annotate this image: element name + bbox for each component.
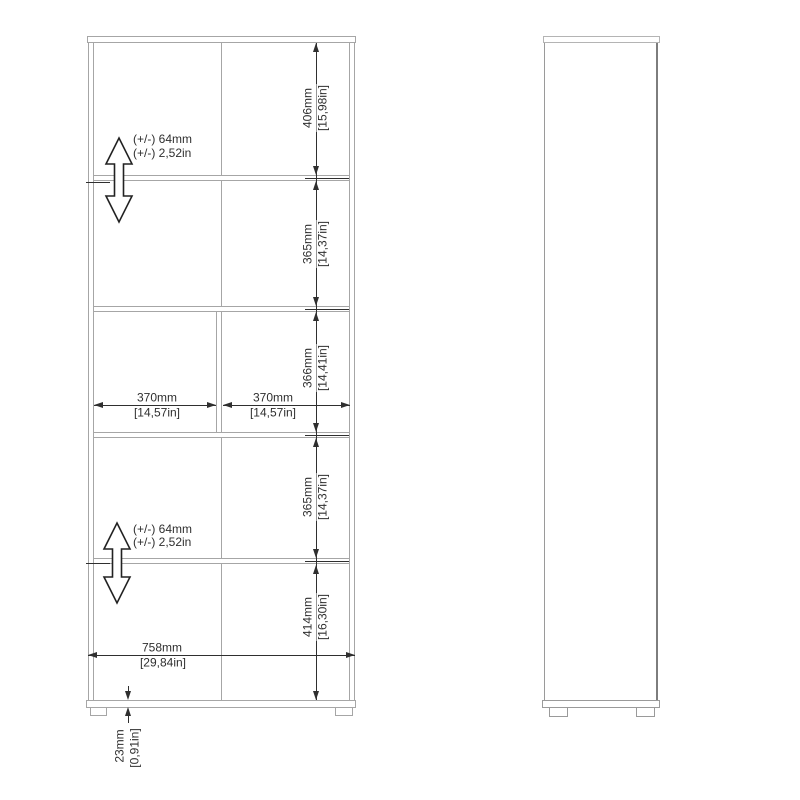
dim-arrow-top: [313, 43, 319, 52]
technical-drawing-canvas: 406mm [15,98in] 365mm [14,37in] 366mm [1…: [0, 0, 800, 800]
ext-line-shelf-1: [305, 178, 349, 179]
dim-label-370mm-right: 370mm: [252, 392, 294, 405]
dim-label-414mm-in: [16,30in]: [317, 593, 330, 641]
side-top-panel: [543, 36, 660, 43]
dim-line-plinth-lower: [128, 716, 129, 723]
dim-arrow-shelf4-below: [313, 565, 319, 574]
dim-label-366mm: 366mm: [302, 347, 315, 389]
dim-label-370mm-right-in: [14,57in]: [249, 407, 297, 420]
front-top-panel: [87, 36, 356, 43]
dim-label-758mm: 758mm: [141, 642, 183, 655]
front-left-side-panel: [88, 42, 94, 701]
dim-label-366mm-in: [14,41in]: [317, 344, 330, 392]
dim-arrow-bottom: [313, 691, 319, 700]
front-center-divider-edge: [216, 312, 217, 432]
dim-arrow-shelf3-below: [313, 438, 319, 447]
front-foot-right: [335, 707, 353, 716]
adjustable-shelf-arrow-icon: [101, 521, 133, 607]
adjustable-note-1-mm: (+/-) 64mm: [133, 133, 192, 146]
dim-label-414mm: 414mm: [302, 596, 315, 638]
adjustable-note-2-in: (+/-) 2,52in: [133, 536, 191, 549]
dim-arrow-shelf3-above: [313, 423, 319, 432]
dim-label-406mm: 406mm: [302, 87, 315, 129]
dim-arrow-overall-width-l: [88, 652, 97, 658]
side-body: [544, 43, 658, 700]
dim-arrow-overall-width-r: [346, 652, 355, 658]
ext-line-shelf-4: [305, 561, 349, 562]
dim-arrow-shelf1-above: [313, 166, 319, 175]
ext-line-shelf-3: [305, 435, 349, 436]
dim-arrow-left-compartment-l: [94, 402, 103, 408]
front-foot-left: [90, 707, 107, 716]
front-center-divider: [221, 43, 222, 700]
dim-arrow-right-compartment-l: [223, 402, 232, 408]
dim-arrow-right-compartment-r: [341, 402, 350, 408]
dim-label-23mm-in: [0,91in]: [129, 727, 142, 768]
dim-label-365mm-lower: 365mm: [302, 476, 315, 518]
front-right-side-panel: [349, 42, 355, 701]
dim-label-406mm-in: [15,98in]: [317, 84, 330, 132]
dim-arrow-shelf2-below: [313, 312, 319, 321]
dim-arrow-shelf2-above: [313, 297, 319, 306]
dim-label-365mm-lower-in: [14,37in]: [317, 473, 330, 521]
dim-label-365mm-upper: 365mm: [302, 223, 315, 265]
dim-label-370mm-left-in: [14,57in]: [133, 407, 181, 420]
adjustable-note-1-in: (+/-) 2,52in: [133, 147, 191, 160]
dim-arrow-shelf1-below: [313, 181, 319, 190]
side-foot-right: [636, 707, 655, 717]
dim-arrow-plinth-upper: [125, 691, 131, 700]
ext-line-shelf-2: [305, 309, 349, 310]
dim-label-370mm-left: 370mm: [136, 392, 178, 405]
dim-arrow-shelf4-above: [313, 549, 319, 558]
dim-line-overall-width: [88, 655, 355, 656]
dim-label-23mm: 23mm: [114, 728, 127, 763]
dim-arrow-left-compartment-r: [207, 402, 216, 408]
adjustable-shelf-arrow-icon: [103, 136, 135, 226]
dim-label-758mm-in: [29,84in]: [139, 657, 187, 670]
dim-label-365mm-upper-in: [14,37in]: [317, 220, 330, 268]
side-foot-left: [549, 707, 568, 717]
dim-arrow-plinth-lower: [125, 707, 131, 716]
